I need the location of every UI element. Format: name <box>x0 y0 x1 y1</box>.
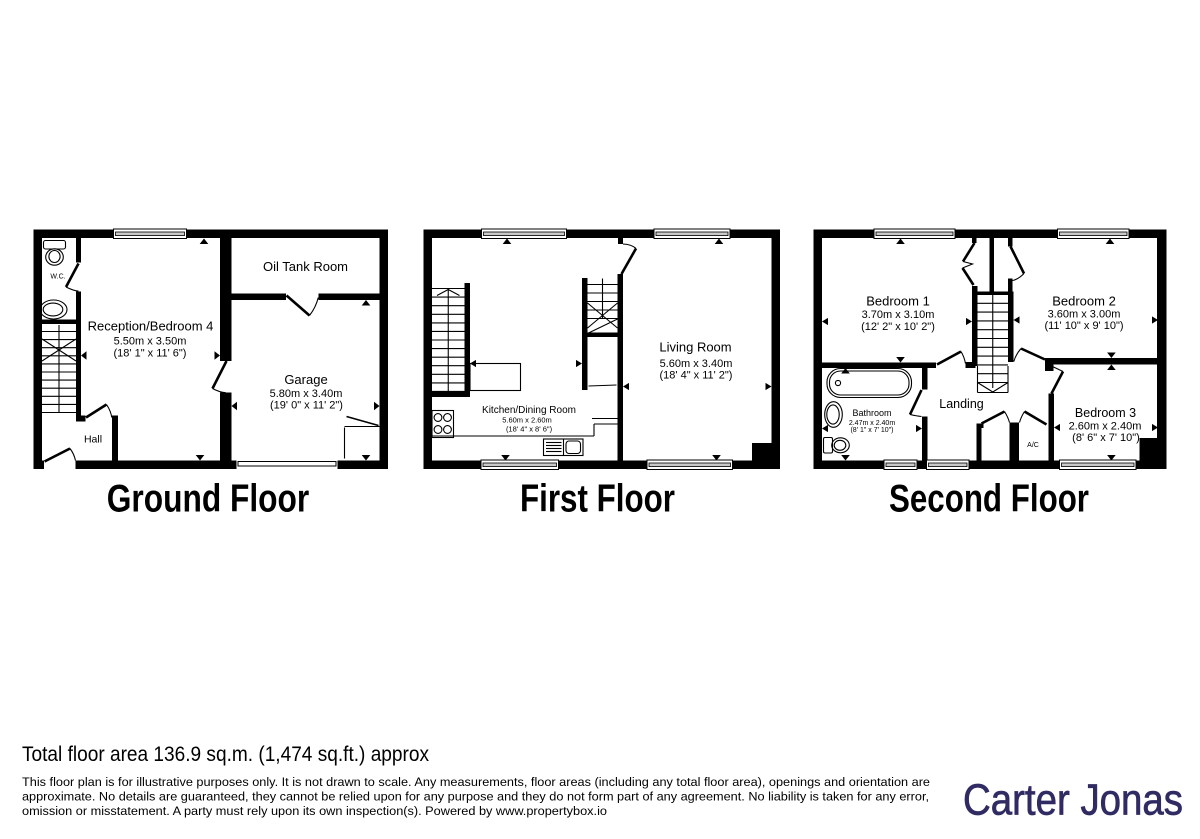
svg-text:omission or misstatement. A pa: omission or misstatement. A party must r… <box>22 804 607 818</box>
svg-text:Hall: Hall <box>84 434 102 446</box>
svg-text:2.60m x 2.40m: 2.60m x 2.40m <box>1069 421 1142 433</box>
svg-text:Carter Jonas: Carter Jonas <box>963 776 1183 825</box>
svg-text:Bedroom 1: Bedroom 1 <box>866 294 930 309</box>
svg-text:(12' 2" x 10' 2"): (12' 2" x 10' 2") <box>861 321 935 333</box>
svg-text:5.80m x 3.40m: 5.80m x 3.40m <box>270 388 343 400</box>
svg-text:3.70m x 3.10m: 3.70m x 3.10m <box>862 309 935 321</box>
svg-text:3.60m x 3.00m: 3.60m x 3.00m <box>1048 309 1121 321</box>
svg-text:(8' 1" x 7' 10"): (8' 1" x 7' 10") <box>850 427 893 434</box>
svg-text:Bedroom 2: Bedroom 2 <box>1052 294 1116 309</box>
svg-text:Kitchen/Dining Room: Kitchen/Dining Room <box>482 405 576 416</box>
svg-text:Living Room: Living Room <box>659 340 731 355</box>
svg-text:approximate. No details are gu: approximate. No details are guaranteed, … <box>22 790 929 804</box>
svg-text:W.C.: W.C. <box>50 274 65 281</box>
svg-text:5.50m x 3.50m: 5.50m x 3.50m <box>114 336 187 348</box>
svg-text:Landing: Landing <box>939 397 984 411</box>
svg-text:5.60m x 3.40m: 5.60m x 3.40m <box>660 358 733 370</box>
svg-text:A/C: A/C <box>1027 442 1039 449</box>
svg-text:This floor plan is for illustr: This floor plan is for illustrative purp… <box>22 775 930 789</box>
svg-text:Bedroom 3: Bedroom 3 <box>1075 406 1136 420</box>
svg-text:(18' 4" x 8' 6"): (18' 4" x 8' 6") <box>506 425 553 434</box>
svg-text:2.47m x 2.40m: 2.47m x 2.40m <box>849 420 895 427</box>
svg-text:First Floor: First Floor <box>520 478 675 521</box>
svg-text:(11' 10" x 9' 10"): (11' 10" x 9' 10") <box>1044 320 1123 332</box>
svg-text:Ground Floor: Ground Floor <box>107 478 310 521</box>
svg-text:Garage: Garage <box>284 372 327 387</box>
svg-text:(19' 0" x 11' 2"): (19' 0" x 11' 2") <box>270 400 343 412</box>
svg-text:(18' 4" x 11' 2"): (18' 4" x 11' 2") <box>660 370 733 382</box>
svg-text:Second Floor: Second Floor <box>889 478 1089 521</box>
svg-text:Bathroom: Bathroom <box>852 408 891 418</box>
svg-text:Oil Tank Room: Oil Tank Room <box>263 259 348 274</box>
svg-text:(8' 6" x 7' 10"): (8' 6" x 7' 10") <box>1072 432 1140 444</box>
svg-text:Reception/Bedroom 4: Reception/Bedroom 4 <box>88 319 214 334</box>
svg-text:Total floor area 136.9 sq.m. (: Total floor area 136.9 sq.m. (1,474 sq.f… <box>22 743 429 766</box>
svg-text:5.60m x 2.60m: 5.60m x 2.60m <box>502 416 552 425</box>
svg-text:(18' 1" x 11' 6"): (18' 1" x 11' 6") <box>114 348 187 360</box>
